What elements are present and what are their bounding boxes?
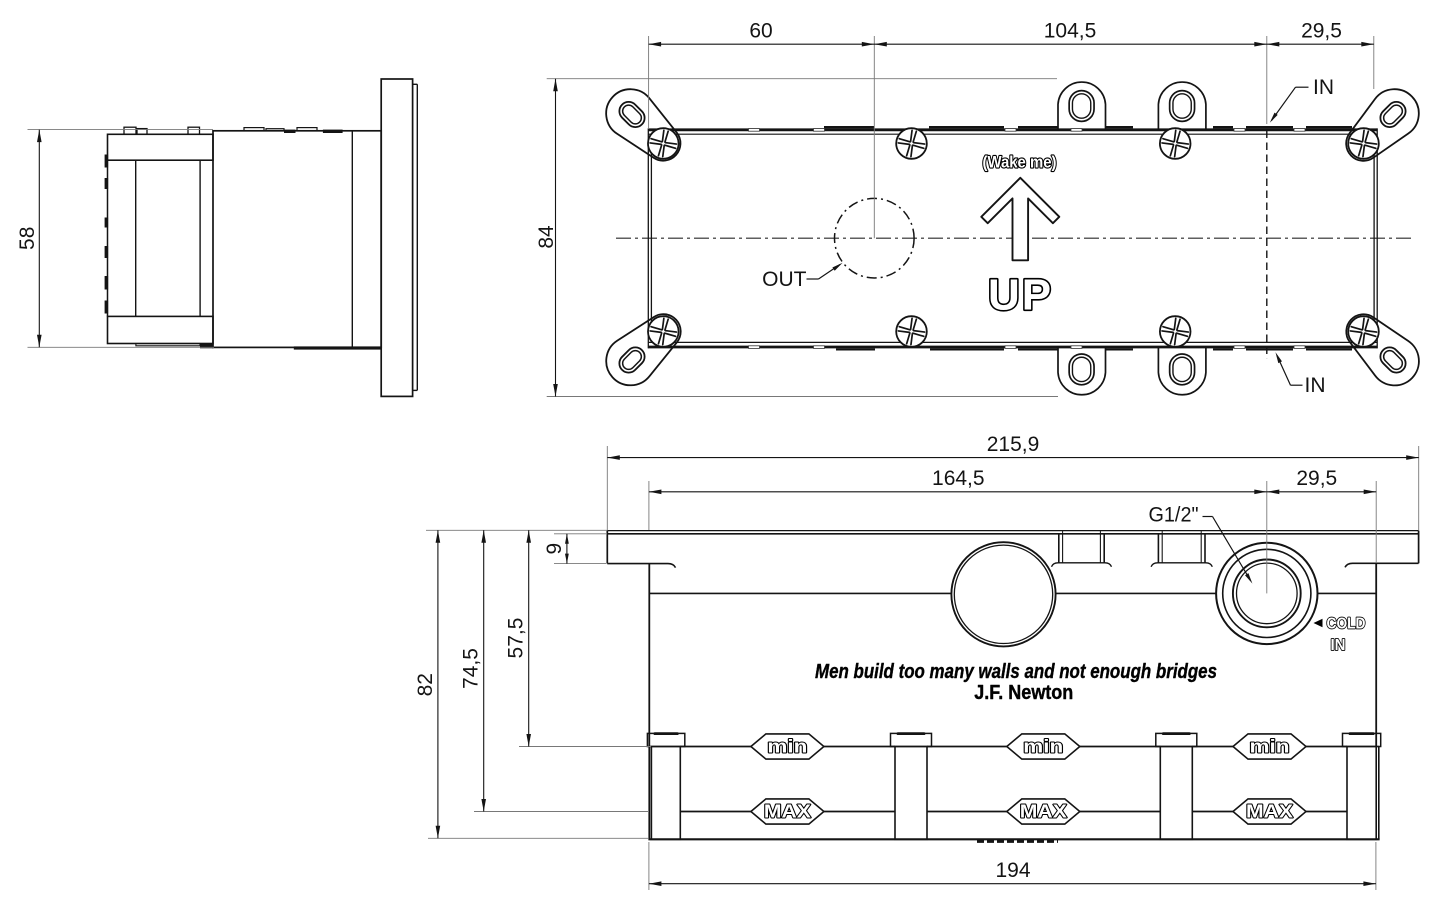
- svg-text:104,5: 104,5: [1044, 20, 1097, 43]
- svg-text:COLD: COLD: [1327, 616, 1366, 633]
- svg-text:84: 84: [535, 225, 558, 249]
- svg-text:74,5: 74,5: [460, 648, 483, 689]
- svg-text:60: 60: [749, 20, 772, 43]
- svg-text:min: min: [1023, 737, 1063, 757]
- svg-text:MAX: MAX: [1020, 802, 1067, 822]
- svg-text:IN: IN: [1305, 374, 1326, 397]
- svg-text:58: 58: [16, 227, 39, 250]
- svg-text:IN: IN: [1313, 76, 1334, 99]
- svg-text:Men build too many walls and n: Men build too many walls and not enough …: [815, 661, 1217, 683]
- svg-text:164,5: 164,5: [932, 467, 985, 490]
- svg-text:UP: UP: [988, 271, 1053, 320]
- svg-text:(Wake me): (Wake me): [983, 154, 1057, 172]
- svg-text:MAX: MAX: [1246, 802, 1293, 822]
- svg-text:min: min: [1250, 737, 1290, 757]
- svg-text:G1/2": G1/2": [1149, 504, 1199, 527]
- svg-text:57,5: 57,5: [505, 618, 528, 659]
- svg-text:J.F. Newton: J.F. Newton: [974, 682, 1073, 704]
- svg-text:194: 194: [995, 859, 1030, 882]
- svg-text:29,5: 29,5: [1301, 20, 1342, 43]
- svg-text:29,5: 29,5: [1296, 467, 1337, 490]
- svg-text:9: 9: [543, 543, 566, 555]
- svg-text:82: 82: [414, 673, 437, 696]
- svg-text:min: min: [767, 737, 807, 757]
- svg-text:OUT: OUT: [762, 268, 807, 291]
- svg-text:MAX: MAX: [764, 802, 811, 822]
- svg-text:215,9: 215,9: [987, 433, 1040, 456]
- svg-text:IN: IN: [1331, 637, 1346, 654]
